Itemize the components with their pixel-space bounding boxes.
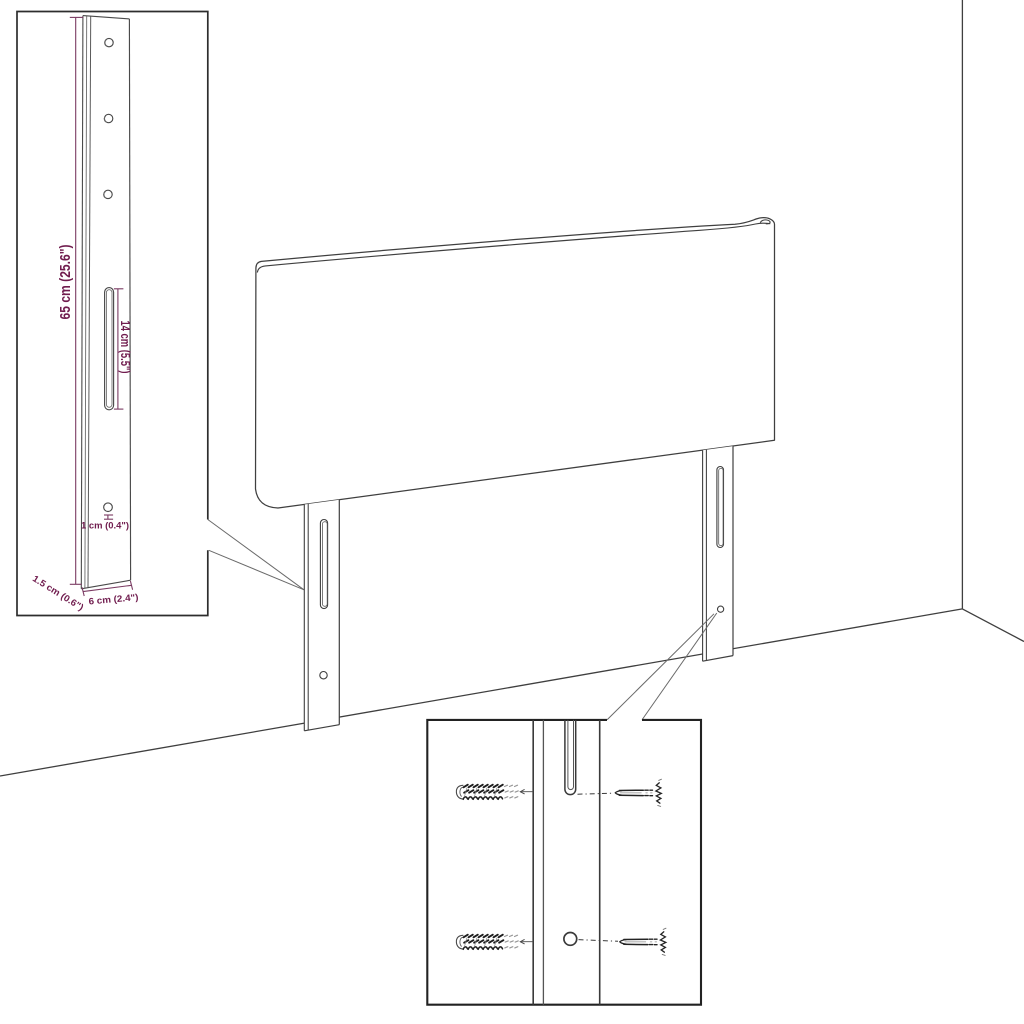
svg-text:14 cm (5.5"): 14 cm (5.5") xyxy=(118,321,133,374)
svg-text:1 cm (0.4"): 1 cm (0.4") xyxy=(81,521,129,531)
svg-text:65 cm (25.6"): 65 cm (25.6") xyxy=(57,244,74,319)
